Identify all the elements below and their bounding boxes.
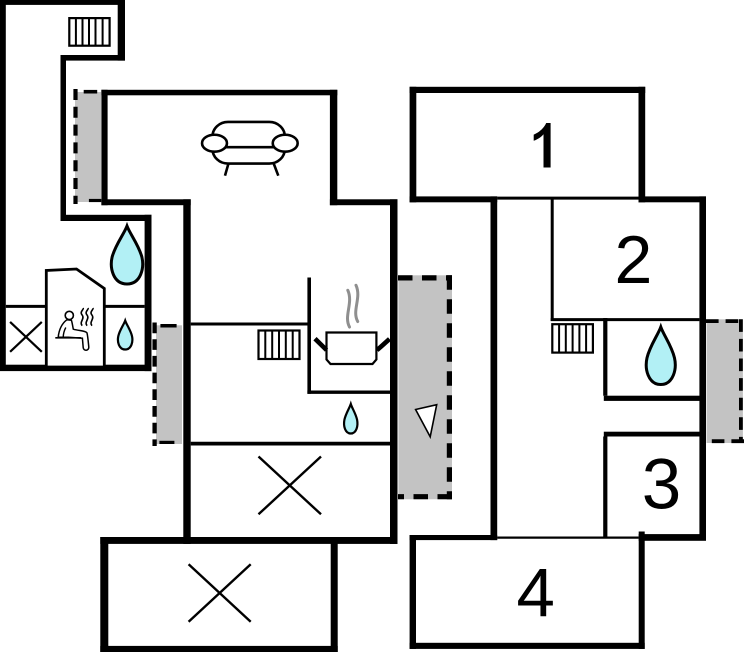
svg-text:4: 4 — [517, 554, 555, 631]
svg-text:3: 3 — [642, 446, 682, 525]
svg-text:2: 2 — [614, 222, 652, 298]
